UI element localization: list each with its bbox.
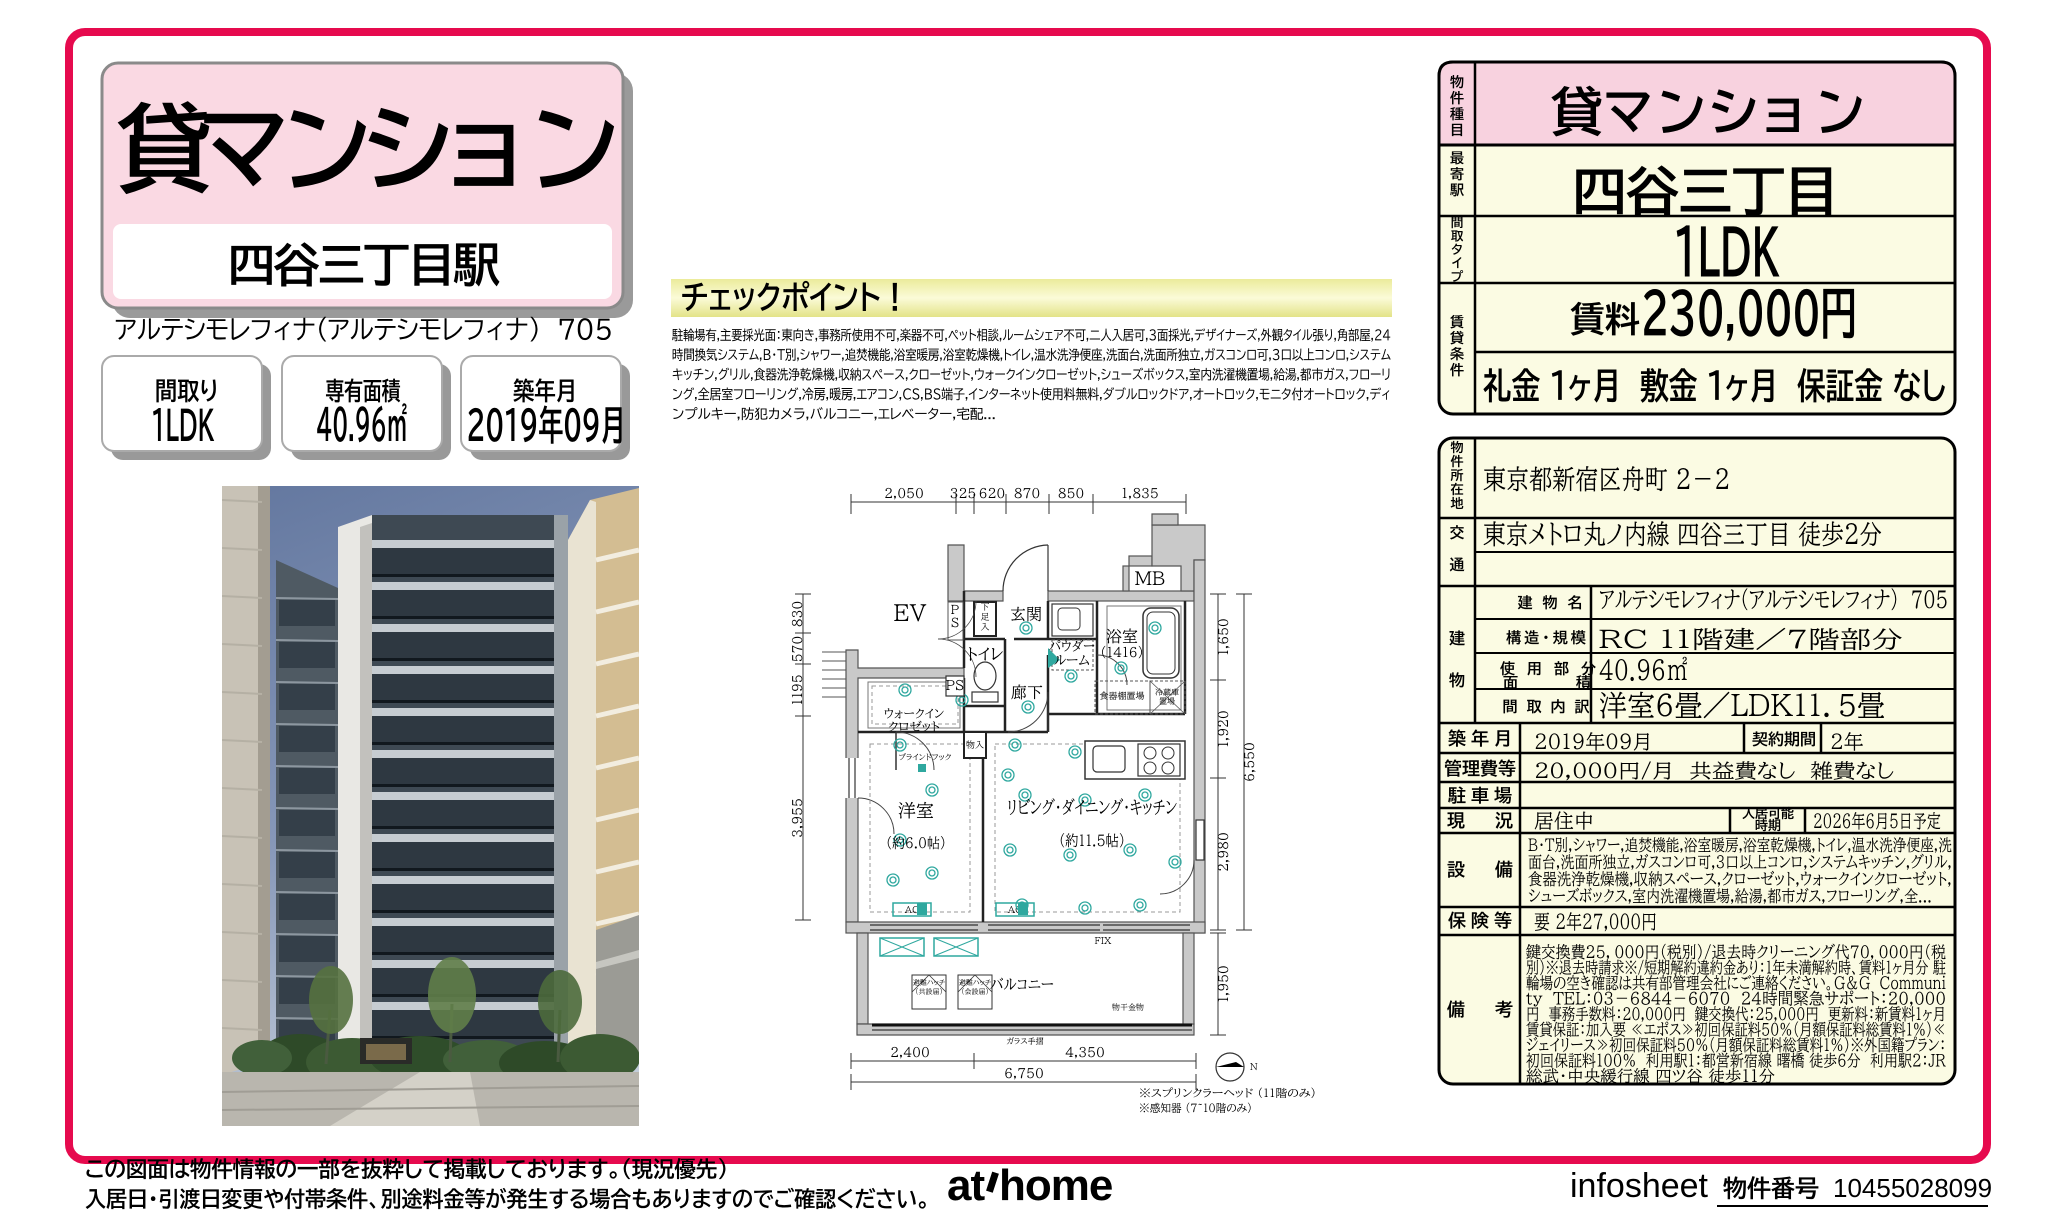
svg-text:home: home xyxy=(999,1161,1112,1210)
svg-text:10455028099: 10455028099 xyxy=(1833,1173,1992,1203)
svg-text:infosheet: infosheet xyxy=(1570,1167,1709,1205)
svg-text:at: at xyxy=(947,1161,985,1210)
